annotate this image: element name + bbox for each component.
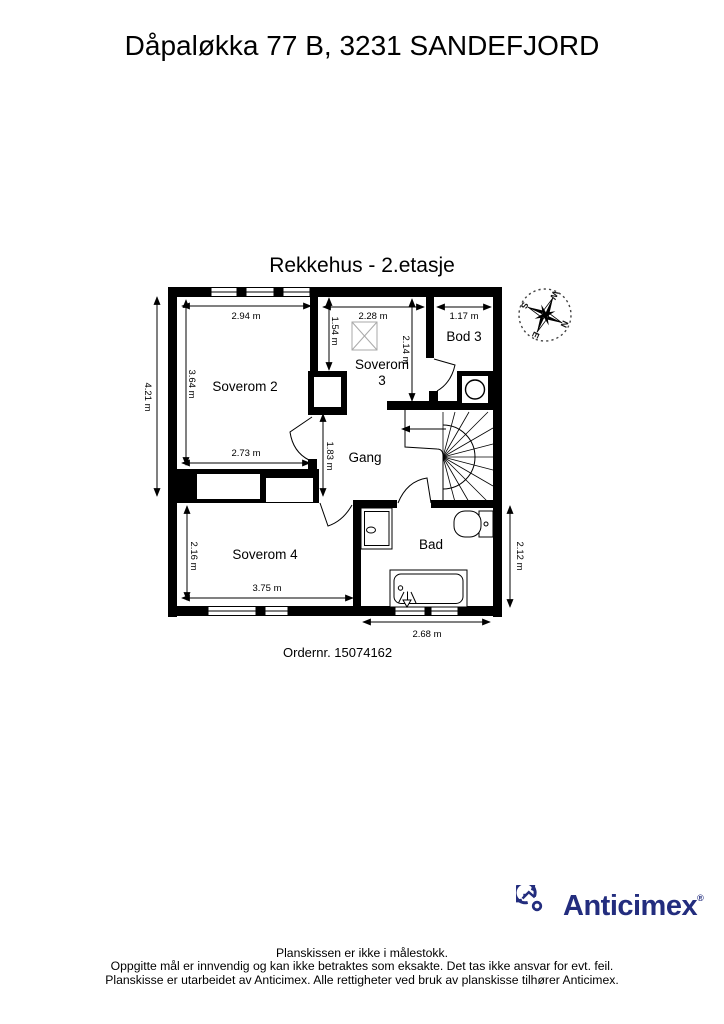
room-label-soverom3-line1: Soverom [355, 357, 409, 372]
disclaimer-line-2: Oppgitte mål er innvendig og kan ikke be… [0, 960, 724, 973]
skylight-icon [352, 322, 377, 350]
room-labels: Soverom 2 Soverom 3 Bod 3 Gang Soverom 4… [212, 329, 481, 562]
door-bad [398, 478, 431, 503]
compass-w: W [548, 289, 561, 301]
door-bod3 [434, 359, 455, 391]
logo-wordmark: Anticimex [563, 890, 697, 922]
water-heater-icon [466, 380, 485, 399]
disclaimer-line-3: Planskisse er utarbeidet av Anticimex. A… [0, 974, 724, 987]
bathtub-icon [390, 570, 467, 607]
dim-soverom2-width-bottom: 2.73 m [231, 448, 260, 459]
dim-soverom3-height-left: 1.54 m [329, 316, 340, 345]
dim-soverom2-height: 3.64 m [186, 369, 197, 398]
room-label-soverom2: Soverom 2 [212, 379, 277, 394]
compass-s: S [519, 301, 531, 311]
dim-bad-height: 2.12 m [514, 541, 525, 570]
door-soverom4 [320, 503, 352, 526]
sink-icon [361, 508, 392, 549]
disclaimer: Planskissen er ikke i målestokk. Oppgitt… [0, 947, 724, 987]
anticimex-logo: Anticimex® [516, 885, 704, 927]
room-label-soverom4: Soverom 4 [232, 547, 298, 562]
dim-soverom4-width: 3.75 m [252, 583, 281, 594]
disclaimer-line-1: Planskissen er ikke i målestokk. [0, 947, 724, 960]
dim-bod3-width: 1.17 m [449, 311, 478, 322]
door-soverom2 [290, 417, 312, 460]
dim-soverom2-width-top: 2.94 m [231, 311, 260, 322]
compass-e: E [530, 330, 542, 340]
page-title: Dåpaløkka 77 B, 3231 SANDEFJORD [0, 30, 724, 62]
dim-soverom4-height: 2.16 m [188, 541, 199, 570]
room-label-bad: Bad [419, 537, 443, 552]
dim-bad-width: 2.68 m [412, 629, 441, 640]
toilet-icon [454, 511, 493, 537]
plan-subtitle: Rekkehus - 2.etasje [0, 254, 724, 278]
room-label-gang: Gang [348, 450, 381, 465]
winder-stairs [401, 410, 493, 502]
registered-mark-icon: ® [697, 893, 704, 903]
compass-rose-icon: N E S W [509, 280, 580, 350]
room-label-soverom3-line2: 3 [378, 373, 386, 388]
dim-gang-height: 1.83 m [324, 441, 335, 470]
stairs-direction-arrow [401, 426, 446, 433]
order-number: Ordernr. 15074162 [283, 645, 392, 660]
dim-left-total-height: 4.21 m [142, 382, 153, 411]
anticimex-swirl-house-icon [516, 885, 558, 927]
floorplan-drawing: 2.94 m 3.64 m 2.73 m 4.21 m 1.54 m 2.28 … [0, 0, 724, 1024]
floorplan-page: 2.94 m 3.64 m 2.73 m 4.21 m 1.54 m 2.28 … [0, 0, 724, 1024]
compass-n: N [559, 319, 571, 329]
room-label-bod3: Bod 3 [446, 329, 481, 344]
dim-soverom3-width: 2.28 m [358, 311, 387, 322]
